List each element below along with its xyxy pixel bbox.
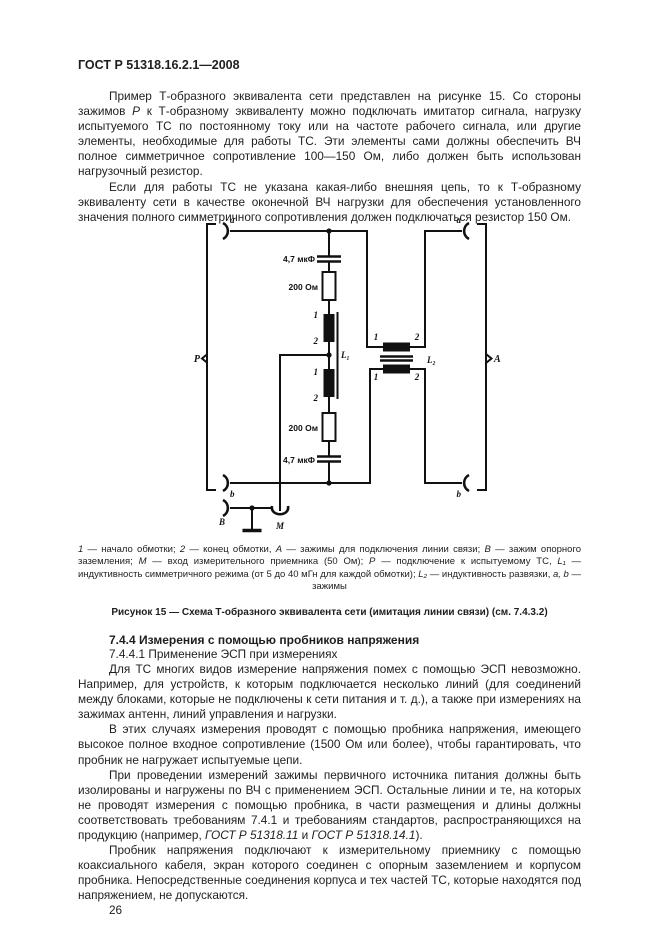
text-segment: — зажимы для подключения линии связи; (282, 544, 484, 555)
bracket-a-side (477, 224, 486, 490)
terminal-a-left-icon (223, 223, 228, 239)
resistor-bottom-icon (323, 413, 336, 441)
wire-top-right (410, 231, 462, 347)
label-l2-upper-start: 1 (374, 332, 379, 342)
document-page: ГОСТ Р 51318.16.2.1—2008 Пример Т-образн… (0, 0, 661, 919)
figure-caption: Рисунок 15 — Схема Т-образного эквивален… (78, 607, 581, 618)
label-l2-lower-start: 1 (374, 372, 379, 382)
paragraph-1: Пример Т-образного эквивалента сети пред… (78, 89, 581, 180)
terminal-b-ground-icon (223, 500, 228, 516)
text-segment: L₂ (418, 569, 427, 580)
paragraph-3: Для ТС многих видов измерение напряжения… (78, 662, 581, 722)
bracket-p (207, 224, 216, 490)
text-segment: — индуктивность развязки, (427, 569, 553, 580)
winding-l2-upper (383, 342, 410, 351)
text-segment: — начало обмотки; (83, 544, 180, 555)
text-segment: — конец обмотки, (185, 544, 276, 555)
text-segment: Р (132, 104, 140, 118)
text-segment: — подключение к испытуемому ТС, (375, 556, 557, 567)
capacitor-top-icon (317, 256, 341, 261)
label-l2: L₂ (426, 355, 436, 365)
doc-header: ГОСТ Р 51318.16.2.1—2008 (78, 58, 581, 72)
figure-15: P A a a b b 4,7 мкФ (78, 211, 581, 541)
page-number: 26 (78, 903, 581, 918)
label-l1: L₁ (340, 350, 350, 360)
label-winding1-start: 1 (314, 310, 319, 320)
paragraph-5: При проведении измерений зажимы первично… (78, 768, 581, 843)
winding-l2-lower (383, 364, 410, 373)
winding-l1-upper (324, 314, 335, 342)
capacitor-bottom-icon (317, 456, 341, 461)
text-segment: a, b (553, 569, 569, 580)
wire-bottom-right (410, 369, 462, 483)
label-winding2-end: 2 (313, 393, 319, 403)
terminal-b-left-icon (223, 475, 228, 491)
label-terminal-a-left: a (230, 215, 235, 225)
text-segment: М (139, 556, 147, 567)
paragraph-4: В этих случаях измерения проводят с помо… (78, 722, 581, 767)
paragraph-6: Пробник напряжения подключают к измерите… (78, 843, 581, 903)
resistor-top-icon (323, 272, 336, 300)
label-resistor-top: 200 Ом (289, 282, 318, 292)
terminal-a-right-icon (464, 223, 469, 239)
label-winding2-start: 1 (314, 367, 319, 377)
section-heading-7441: 7.4.4.1 Применение ЭСП при измерениях (78, 647, 581, 662)
label-capacitor-bottom: 4,7 мкФ (283, 455, 315, 465)
label-winding1-end: 2 (313, 336, 319, 346)
text-segment: ГОСТ Р 51318.14.1 (311, 828, 415, 842)
section-heading-744: 7.4.4 Измерения с помощью пробников напр… (78, 633, 581, 647)
label-terminal-m: M (275, 521, 285, 531)
text-segment: ). (415, 828, 422, 842)
text-segment: L₁ (557, 556, 565, 567)
text-segment: к Т-образному эквиваленту можно подключа… (78, 104, 581, 178)
label-resistor-bottom: 200 Ом (289, 423, 318, 433)
text-segment: — вход измерительного приемника (50 Ом); (147, 556, 370, 567)
label-terminal-b-left: b (230, 489, 235, 499)
label-terminal-a-right: a (457, 215, 462, 225)
label-terminal-b-right: b (457, 489, 462, 499)
label-l2-upper-end: 2 (414, 332, 420, 342)
label-l2-lower-end: 2 (414, 372, 420, 382)
label-capacitor-top: 4,7 мкФ (283, 254, 315, 264)
label-a-side: A (493, 354, 501, 365)
text-segment: ГОСТ Р 51318.11 (205, 828, 298, 842)
figure-legend: 1 — начало обмотки; 2 — конец обмотки, А… (78, 544, 581, 594)
label-terminal-b-ground: B (218, 517, 225, 527)
figure-15-schematic: P A a a b b 4,7 мкФ (192, 211, 504, 541)
terminal-b-right-icon (464, 475, 469, 491)
winding-l1-lower (324, 369, 335, 397)
label-p: P (194, 354, 201, 365)
core-l2 (380, 356, 413, 360)
text-segment: и (298, 828, 311, 842)
